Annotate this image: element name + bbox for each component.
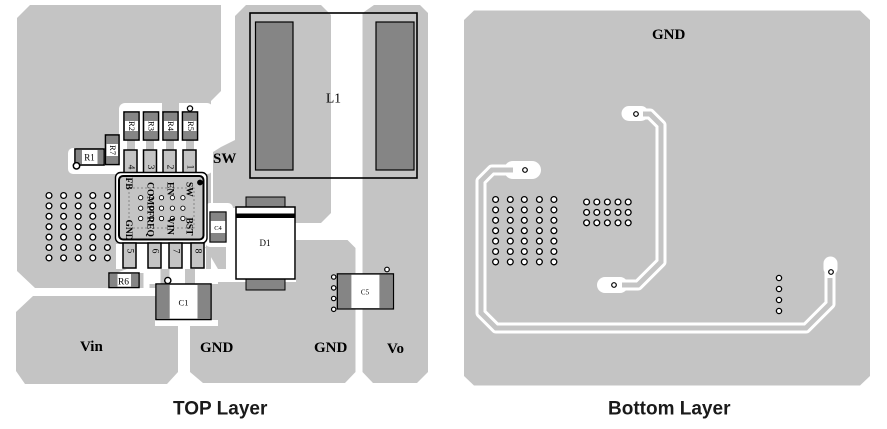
svg-text:R5: R5 [186,121,196,131]
svg-text:L1: L1 [326,91,341,106]
svg-text:R7: R7 [108,145,118,155]
svg-text:R1: R1 [84,153,95,163]
svg-text:GND: GND [123,220,133,241]
svg-text:COMP: COMP [145,182,155,211]
svg-text:FREQ: FREQ [145,211,155,237]
svg-text:C5: C5 [361,289,370,297]
svg-text:BST: BST [184,218,194,237]
svg-text:7: 7 [170,249,180,254]
svg-text:C1: C1 [179,298,189,308]
svg-text:GND: GND [200,340,234,356]
svg-text:SW: SW [184,182,194,197]
svg-text:Bottom Layer: Bottom Layer [608,399,731,420]
svg-text:C4: C4 [214,225,222,232]
svg-text:4: 4 [125,165,135,170]
svg-text:2: 2 [164,165,174,170]
svg-text:VIN: VIN [165,218,175,236]
svg-text:5: 5 [124,249,134,254]
svg-text:TOP Layer: TOP Layer [173,399,268,420]
svg-text:8: 8 [192,249,202,254]
svg-text:6: 6 [149,249,159,254]
svg-text:SW: SW [213,151,236,167]
svg-text:R3: R3 [147,121,157,131]
svg-text:1: 1 [184,165,194,170]
svg-text:GND: GND [314,340,348,356]
svg-text:FB: FB [123,178,133,191]
svg-text:EN: EN [165,182,175,195]
svg-text:Vin: Vin [80,339,103,355]
svg-text:3: 3 [145,165,155,170]
svg-text:D1: D1 [260,238,271,248]
svg-text:R2: R2 [127,121,137,131]
svg-text:GND: GND [652,27,686,43]
svg-text:Vo: Vo [387,341,404,357]
svg-text:R4: R4 [166,121,176,132]
svg-text:R6: R6 [118,278,129,288]
